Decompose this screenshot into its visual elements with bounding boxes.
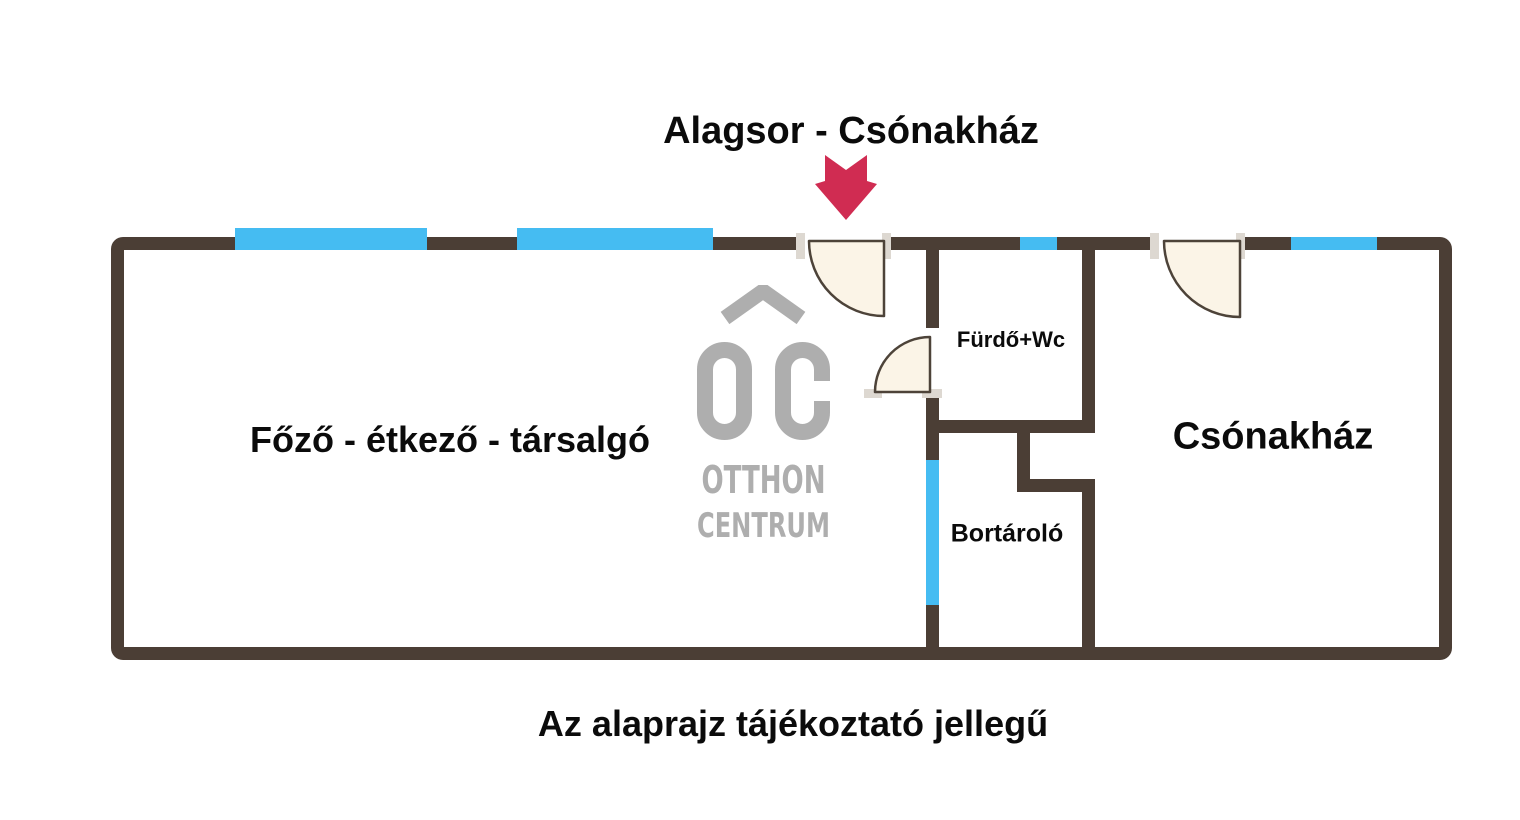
room-label-bortarolo: Bortároló: [951, 520, 1064, 549]
caption-disclaimer: Az alaprajz tájékoztató jellegű: [538, 703, 1048, 745]
wall-segment: [926, 605, 939, 648]
door-opening-gap: [803, 236, 887, 251]
wall-segment: [1017, 479, 1095, 492]
window-marker: [926, 460, 939, 605]
window-marker: [1291, 237, 1377, 250]
hinge-marker: [1236, 233, 1245, 259]
otthon-centrum-logo: OTTHON CENTRUM: [690, 285, 840, 545]
wall-segment: [926, 420, 1095, 433]
room-label-furdo-wc: Fürdő+Wc: [957, 327, 1065, 353]
hinge-marker: [796, 233, 805, 259]
door-opening-gap: [1157, 236, 1243, 251]
hinge-marker: [922, 389, 942, 398]
page-title: Alagsor - Csónakház: [663, 110, 1039, 153]
hinge-marker: [1150, 233, 1159, 259]
wall-segment: [926, 249, 939, 328]
floorplan-page: Alagsor - Csónakház Főző - étkező - társ…: [0, 0, 1520, 820]
window-marker: [235, 228, 427, 250]
wall-segment: [1082, 482, 1095, 648]
logo-roof-chevron-icon: [725, 291, 801, 318]
logo-text-otthon: OTTHON: [702, 458, 826, 502]
logo-letter-o: [705, 350, 744, 432]
room-label-csonakhaz: Csónakház: [1173, 416, 1374, 459]
window-marker: [517, 228, 713, 250]
logo-text-centrum: CENTRUM: [697, 506, 830, 545]
hinge-marker: [882, 233, 891, 259]
room-label-fozo-etkezo-tarsalgo: Főző - étkező - társalgó: [250, 419, 650, 461]
hinge-marker: [864, 389, 882, 398]
window-marker: [1020, 237, 1057, 250]
logo-letter-c: [783, 350, 822, 432]
wall-segment: [1082, 249, 1095, 432]
